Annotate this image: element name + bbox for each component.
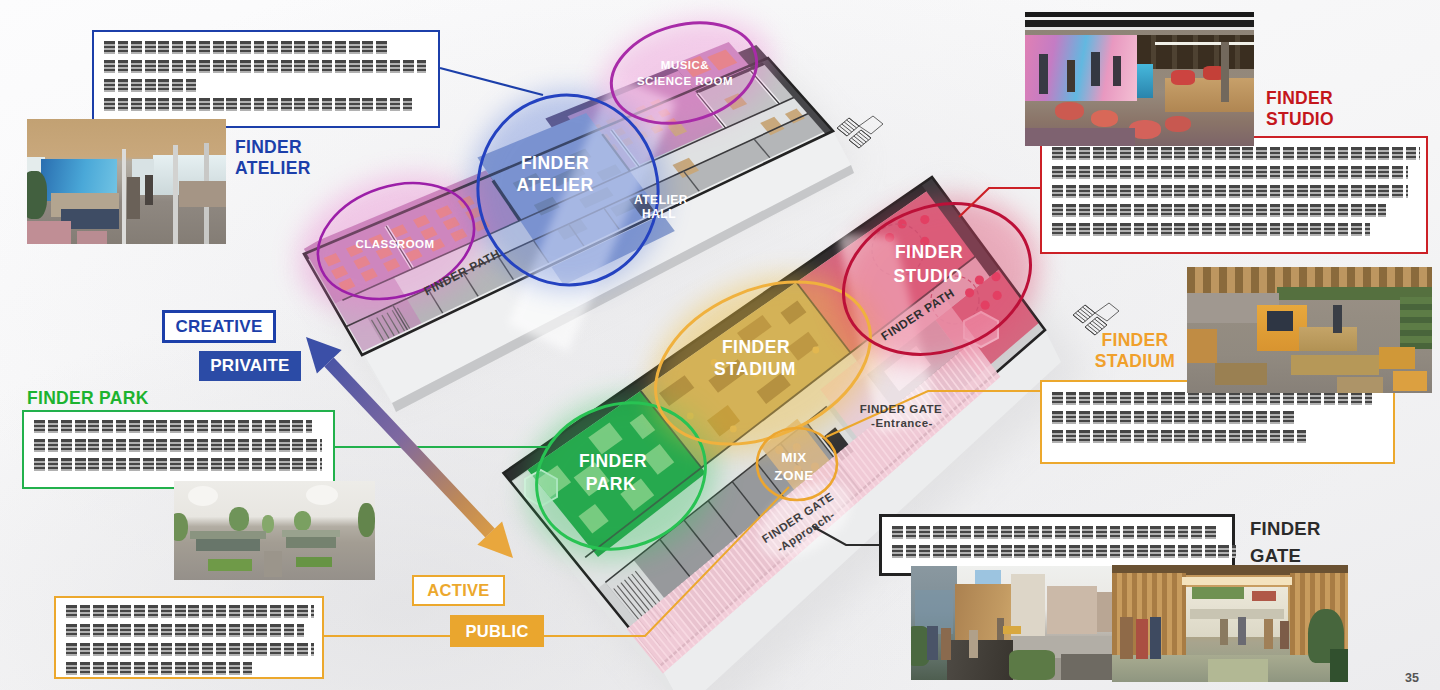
svg-text:ATELIER: ATELIER	[516, 175, 593, 195]
svg-text:CLASSROOM: CLASSROOM	[355, 238, 434, 250]
svg-text:FINDER: FINDER	[722, 337, 790, 357]
svg-text:ZONE: ZONE	[774, 468, 814, 483]
svg-text:-Entrance-: -Entrance-	[871, 417, 933, 429]
svg-text:SCIENCE ROOM: SCIENCE ROOM	[637, 75, 733, 87]
svg-text:FINDER: FINDER	[579, 451, 647, 471]
svg-text:FINDER: FINDER	[895, 242, 963, 262]
svg-text:MIX: MIX	[781, 450, 807, 465]
svg-text:MUSIC&: MUSIC&	[661, 59, 709, 71]
svg-text:STADIUM: STADIUM	[714, 359, 796, 379]
svg-text:PARK: PARK	[586, 474, 636, 494]
svg-text:HALL: HALL	[642, 207, 676, 221]
svg-text:FINDER GATE: FINDER GATE	[860, 403, 943, 415]
svg-text:FINDER: FINDER	[521, 153, 589, 173]
svg-text:STUDIO: STUDIO	[893, 266, 962, 286]
svg-text:ATELIER: ATELIER	[634, 193, 688, 207]
